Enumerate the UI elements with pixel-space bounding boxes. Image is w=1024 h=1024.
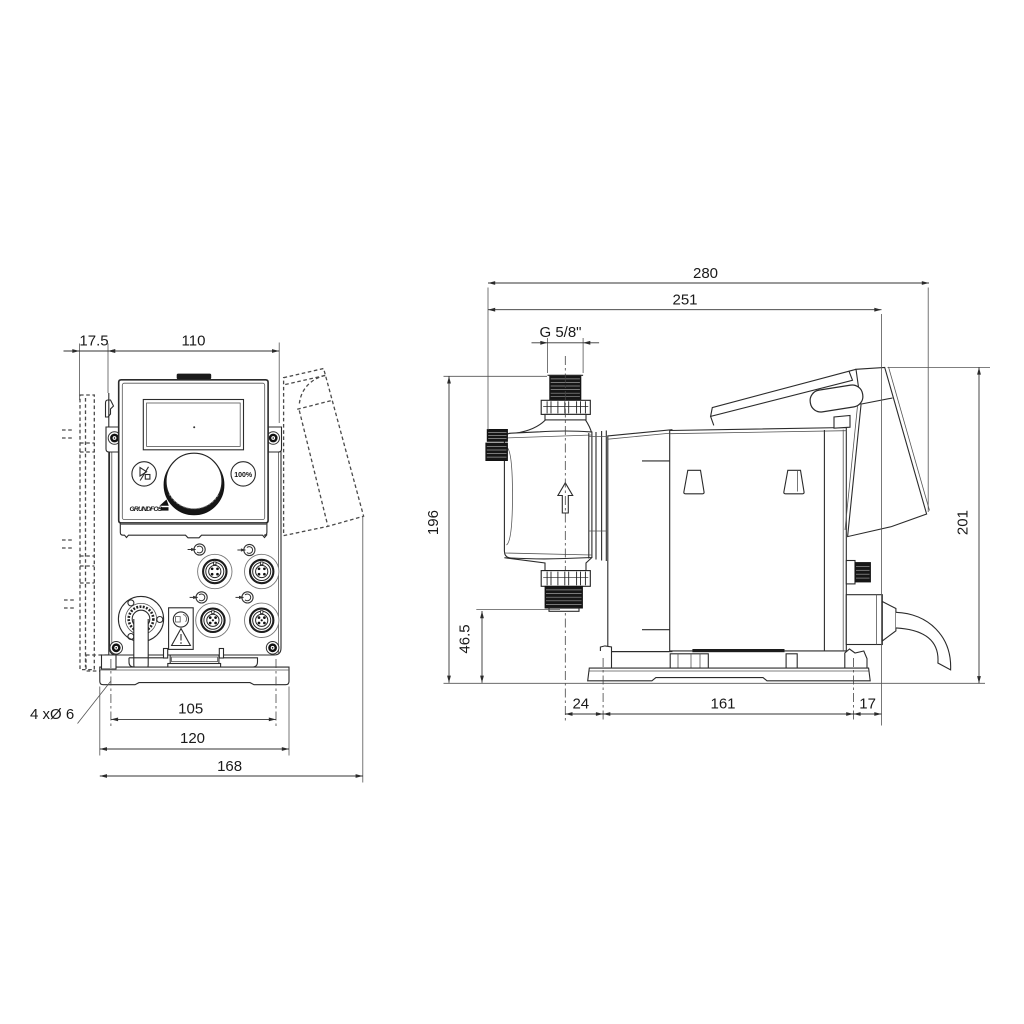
svg-text:168: 168 <box>217 758 242 775</box>
svg-text:100%: 100% <box>234 472 253 479</box>
svg-text:105: 105 <box>178 701 203 718</box>
svg-text:196: 196 <box>425 510 442 535</box>
svg-text:4 xØ 6: 4 xØ 6 <box>30 706 74 723</box>
svg-text:201: 201 <box>955 510 972 535</box>
svg-text:G 5/8": G 5/8" <box>539 324 581 341</box>
svg-text:24: 24 <box>572 696 589 713</box>
svg-text:17.5: 17.5 <box>79 333 108 350</box>
svg-text:251: 251 <box>672 292 697 309</box>
svg-text:120: 120 <box>180 730 205 747</box>
svg-text:17: 17 <box>859 696 876 713</box>
svg-text:46.5: 46.5 <box>456 624 473 653</box>
svg-text:GRUNDFOS: GRUNDFOS <box>130 506 163 513</box>
svg-text:110: 110 <box>182 333 206 350</box>
svg-text:280: 280 <box>693 265 718 282</box>
svg-text:161: 161 <box>710 696 735 713</box>
